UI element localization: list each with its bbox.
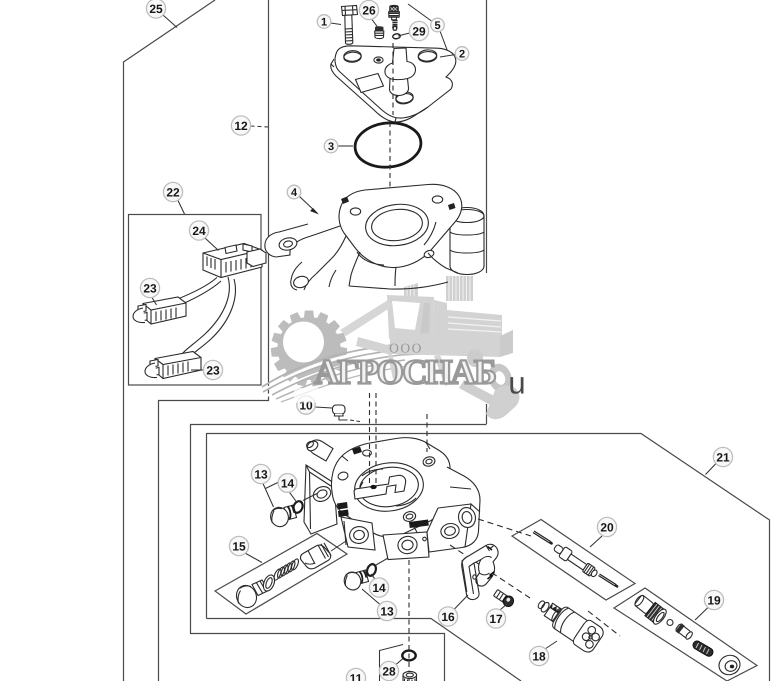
- svg-text:14: 14: [372, 581, 386, 595]
- svg-text:26: 26: [362, 3, 376, 17]
- svg-text:24: 24: [192, 224, 206, 238]
- svg-text:25: 25: [149, 2, 163, 16]
- svg-text:3: 3: [328, 141, 334, 153]
- svg-text:5: 5: [434, 20, 440, 32]
- svg-text:11: 11: [350, 671, 363, 681]
- svg-text:18: 18: [532, 649, 546, 663]
- svg-text:13: 13: [254, 467, 268, 481]
- svg-text:2: 2: [459, 49, 465, 61]
- svg-text:15: 15: [232, 539, 246, 553]
- svg-text:19: 19: [707, 593, 721, 607]
- svg-text:23: 23: [143, 281, 157, 295]
- svg-text:1: 1: [321, 17, 327, 29]
- svg-text:22: 22: [166, 185, 180, 199]
- svg-text:17: 17: [489, 612, 503, 626]
- svg-text:4: 4: [291, 187, 298, 199]
- svg-text:28: 28: [382, 664, 396, 678]
- svg-text:21: 21: [716, 450, 730, 464]
- svg-text:12: 12: [234, 119, 248, 133]
- svg-text:29: 29: [412, 24, 426, 38]
- svg-text:16: 16: [441, 610, 455, 624]
- svg-text:u: u: [508, 366, 525, 401]
- svg-text:13: 13: [380, 604, 394, 618]
- svg-text:23: 23: [206, 363, 220, 377]
- svg-text:АГРОСНАБ: АГРОСНАБ: [314, 353, 495, 392]
- svg-text:14: 14: [281, 476, 295, 490]
- svg-text:20: 20: [600, 520, 614, 534]
